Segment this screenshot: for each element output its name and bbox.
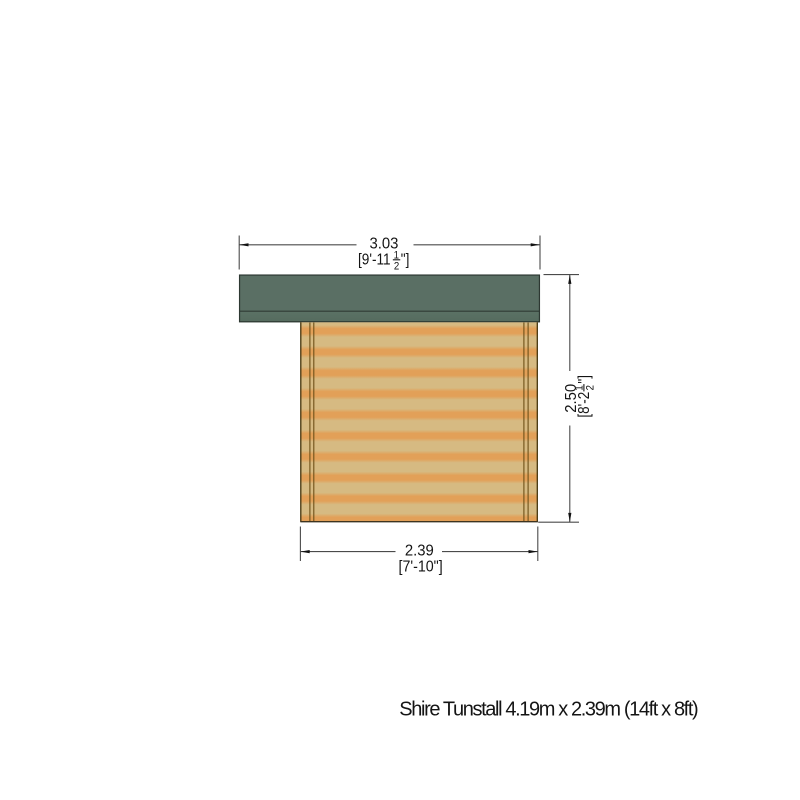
svg-text:2.39: 2.39 bbox=[405, 542, 434, 560]
svg-text:2: 2 bbox=[585, 385, 597, 391]
svg-text:"]: "] bbox=[401, 252, 410, 269]
svg-text:[9'-11: [9'-11 bbox=[358, 252, 391, 269]
svg-text:Shire Tunstall 4.19m x 2.39m (: Shire Tunstall 4.19m x 2.39m (14ft x 8ft… bbox=[399, 698, 698, 720]
svg-text:[8'-2: [8'-2 bbox=[576, 392, 593, 418]
svg-text:2: 2 bbox=[394, 261, 400, 273]
svg-text:"]: "] bbox=[576, 375, 593, 384]
svg-text:[7'-10"]: [7'-10"] bbox=[398, 559, 442, 576]
